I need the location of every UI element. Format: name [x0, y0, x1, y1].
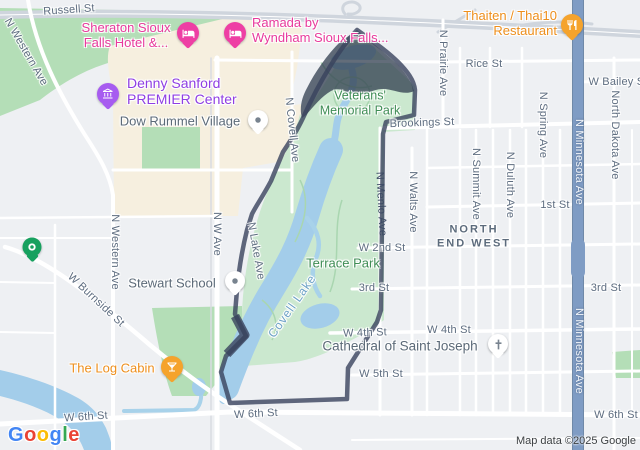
- poi-label-denny-sanford[interactable]: Denny Sanford PREMIER Center: [127, 76, 237, 106]
- dow-rummel-green-area: [142, 127, 200, 170]
- poi-label-line: PREMIER Center: [127, 92, 237, 106]
- street-label-3rd-st-west: 3rd St: [359, 282, 390, 294]
- poi-label-line: Ramada by: [252, 16, 388, 29]
- logo-letter: G: [8, 424, 24, 447]
- logo-letter: o: [24, 424, 37, 447]
- bed-icon: [182, 27, 195, 40]
- map-canvas[interactable]: Russell St Rice St W Bailey St Brookings…: [0, 0, 640, 450]
- dot-icon: [252, 114, 264, 126]
- logo-letter: g: [50, 424, 63, 447]
- poi-label-terrace-park[interactable]: Terrace Park: [306, 257, 380, 270]
- poi-label-line: Denny Sanford: [127, 76, 237, 90]
- poi-label-line: Restaurant: [463, 24, 557, 37]
- street-label-w-2nd-st: W 2nd St: [359, 242, 406, 254]
- hotel-pin-sheraton[interactable]: [177, 22, 199, 44]
- dot-icon: [229, 275, 241, 287]
- map-attribution: Map data ©2025 Google: [516, 435, 636, 447]
- poi-label-dow-rummel[interactable]: Dow Rummel Village: [120, 115, 240, 128]
- poi-label-log-cabin[interactable]: The Log Cabin: [69, 362, 154, 375]
- bar-pin-log-cabin[interactable]: [161, 356, 183, 378]
- poi-label-cathedral[interactable]: Cathedral of Saint Joseph: [322, 339, 477, 353]
- map-base-layer: [0, 0, 640, 450]
- restaurant-icon: [566, 19, 578, 31]
- street-label-n-w-ave: N W Ave: [211, 212, 223, 256]
- street-label-n-summit-ave: N Summit Ave: [470, 148, 482, 220]
- street-label-n-western-ave: N Western Ave: [109, 214, 121, 290]
- neighborhood-label-line: END WEST: [437, 237, 511, 251]
- street-label-n-duluth-ave: N Duluth Ave: [504, 152, 516, 218]
- right-edge-green-area: [612, 350, 640, 378]
- poi-label-line: Falls Hotel &...: [82, 36, 171, 49]
- poi-label-veterans-memorial-park[interactable]: Veterans' Memorial Park: [320, 90, 401, 117]
- church-pin-cathedral[interactable]: [488, 334, 508, 354]
- poi-label-line: Wyndham Sioux Falls...: [252, 31, 388, 44]
- neighborhood-label-line: NORTH: [437, 223, 511, 237]
- google-logo[interactable]: Google: [8, 424, 80, 447]
- street-label-w-5th-st: W 5th St: [359, 368, 403, 380]
- poi-label-line: Memorial Park: [320, 104, 401, 117]
- poi-label-line: Thaiten / Thai10: [463, 9, 557, 22]
- poi-label-sheraton[interactable]: Sheraton Sioux Falls Hotel &...: [82, 21, 171, 49]
- street-label-n-prairie-ave: N Prairie Ave: [437, 30, 449, 97]
- poi-label-stewart-school[interactable]: Stewart School: [128, 277, 215, 290]
- street-label-w-6th-st-east: W 6th St: [594, 409, 638, 421]
- street-label-north-dakota-ave: North Dakota Ave: [609, 90, 621, 179]
- building-icon: [102, 88, 114, 100]
- neighborhood-label-north-end-west: NORTH END WEST: [437, 223, 511, 251]
- poi-label-thaiten[interactable]: Thaiten / Thai10 Restaurant: [463, 9, 557, 37]
- bed-icon: [229, 27, 242, 40]
- street-label-rice-st: Rice St: [466, 58, 503, 70]
- poi-label-ramada[interactable]: Ramada by Wyndham Sioux Falls...: [252, 16, 388, 44]
- street-label-1st-st: 1st St: [540, 199, 569, 211]
- logo-letter: e: [68, 424, 80, 447]
- street-label-n-walts-ave: N Walts Ave: [407, 171, 419, 233]
- poi-pin-dow-rummel[interactable]: [248, 110, 268, 130]
- venue-pin-denny-sanford[interactable]: [97, 83, 119, 105]
- street-label-w-4th-st-east: W 4th St: [427, 324, 471, 336]
- poi-pin-stewart-school[interactable]: [225, 271, 245, 291]
- cocktail-icon: [166, 361, 178, 373]
- street-label-brookings-st: Brookings St: [389, 116, 454, 130]
- ring-icon: [26, 241, 39, 254]
- logo-letter: o: [37, 424, 50, 447]
- poi-label-line: Veterans': [320, 90, 401, 103]
- street-label-w-bailey-st: W Bailey St: [588, 76, 640, 88]
- street-label-n-spring-ave: N Spring Ave: [537, 92, 549, 158]
- poi-label-line: Sheraton Sioux: [82, 21, 171, 34]
- restaurant-pin-thaiten[interactable]: [561, 14, 583, 36]
- cross-icon: [492, 338, 505, 351]
- street-label-w-6th-st-mid: W 6th St: [234, 407, 278, 421]
- street-label-n-minnesota-ave-top: N Minnesota Ave: [573, 119, 585, 205]
- street-label-3rd-st-east: 3rd St: [591, 282, 622, 294]
- park-pin[interactable]: [23, 238, 42, 257]
- street-label-n-minnesota-ave-bottom: N Minnesota Ave: [573, 308, 585, 394]
- hotel-pin-ramada[interactable]: [224, 22, 246, 44]
